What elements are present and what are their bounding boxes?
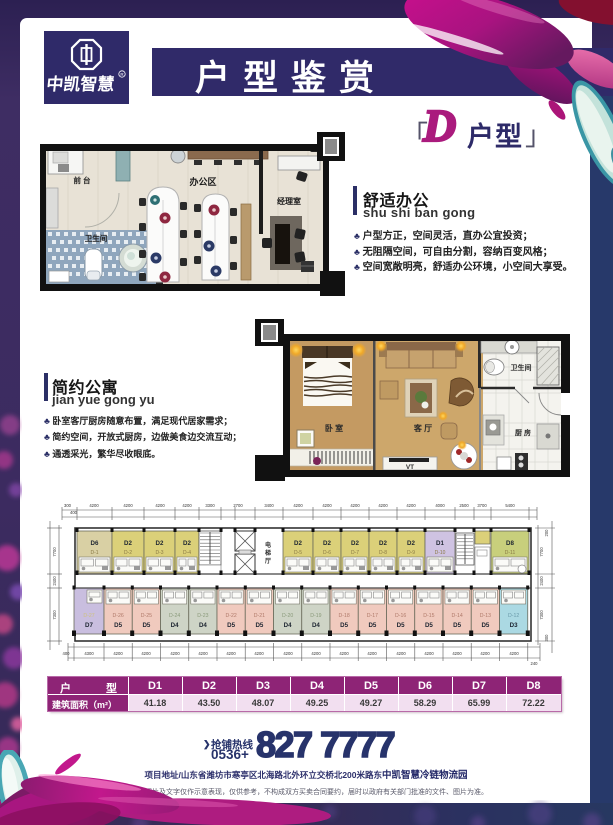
- svg-text:4200: 4200: [406, 503, 416, 508]
- svg-text:D-14: D-14: [451, 613, 462, 619]
- svg-text:200: 200: [544, 529, 549, 537]
- svg-text:2500: 2500: [459, 503, 469, 508]
- svg-text:D5: D5: [481, 622, 489, 629]
- svg-text:4200: 4200: [311, 651, 321, 656]
- svg-text:D5: D5: [114, 622, 122, 629]
- svg-text:D-4: D-4: [183, 550, 191, 556]
- svg-text:4200: 4200: [424, 651, 434, 656]
- svg-text:7300: 7300: [52, 610, 57, 620]
- svg-text:D-7: D-7: [351, 550, 359, 556]
- svg-text:D4: D4: [199, 622, 207, 629]
- svg-text:D5: D5: [368, 622, 376, 629]
- svg-text:4200: 4200: [198, 651, 208, 656]
- svg-text:电: 电: [265, 541, 271, 549]
- svg-text:厨 房: 厨 房: [515, 428, 531, 437]
- svg-text:4200: 4200: [182, 503, 192, 508]
- svg-text:办公区: 办公区: [189, 176, 216, 187]
- svg-text:4200: 4200: [293, 503, 303, 508]
- svg-text:D-16: D-16: [395, 613, 406, 619]
- svg-text:D-20: D-20: [282, 613, 293, 619]
- svg-text:D2: D2: [323, 540, 331, 547]
- svg-text:D2: D2: [294, 540, 302, 547]
- svg-text:D-26: D-26: [112, 613, 123, 619]
- svg-text:D2: D2: [407, 540, 415, 547]
- svg-text:D5: D5: [227, 622, 235, 629]
- svg-text:D2: D2: [183, 540, 191, 547]
- svg-text:厅: 厅: [265, 557, 271, 565]
- svg-text:D-22: D-22: [225, 613, 236, 619]
- svg-text:D4: D4: [312, 622, 320, 629]
- svg-text:梯: 梯: [265, 549, 271, 557]
- svg-text:4200: 4200: [170, 651, 180, 656]
- svg-text:D3: D3: [510, 622, 518, 629]
- svg-text:前 台: 前 台: [73, 175, 91, 185]
- svg-text:卫生间: 卫生间: [511, 363, 532, 372]
- svg-text:4200: 4200: [339, 651, 349, 656]
- svg-text:D4: D4: [284, 622, 292, 629]
- svg-text:D-6: D-6: [323, 550, 331, 556]
- svg-text:D5: D5: [142, 622, 150, 629]
- svg-text:7700: 7700: [52, 547, 57, 557]
- svg-text:卧 室: 卧 室: [325, 423, 343, 433]
- svg-text:240: 240: [531, 661, 539, 666]
- svg-text:D-8: D-8: [379, 550, 387, 556]
- svg-text:4200: 4200: [226, 651, 236, 656]
- svg-text:3700: 3700: [477, 503, 487, 508]
- svg-text:卫生间: 卫生间: [85, 233, 108, 243]
- svg-text:D5: D5: [453, 622, 461, 629]
- svg-text:D-21: D-21: [254, 613, 265, 619]
- svg-text:中凯智慧: 中凯智慧: [45, 74, 115, 94]
- svg-text:400: 400: [70, 510, 78, 515]
- svg-text:D-3: D-3: [155, 550, 163, 556]
- svg-text:4200: 4200: [367, 651, 377, 656]
- svg-text:4200: 4200: [452, 651, 462, 656]
- svg-text:5400: 5400: [505, 503, 515, 508]
- svg-text:经理室: 经理室: [277, 196, 301, 206]
- svg-text:4200: 4200: [509, 651, 519, 656]
- svg-text:4200: 4200: [322, 503, 332, 508]
- svg-text:D2: D2: [379, 540, 387, 547]
- svg-text:D8: D8: [506, 540, 514, 547]
- svg-text:D2: D2: [351, 540, 359, 547]
- svg-text:300: 300: [544, 634, 549, 642]
- svg-text:4200: 4200: [155, 503, 165, 508]
- svg-text:4200: 4200: [396, 651, 406, 656]
- svg-text:VT: VT: [406, 464, 414, 471]
- svg-text:D-11: D-11: [505, 550, 516, 556]
- svg-text:4000: 4000: [435, 503, 445, 508]
- svg-text:D4: D4: [171, 622, 179, 629]
- svg-text:4200: 4200: [378, 503, 388, 508]
- svg-text:4200: 4200: [113, 651, 123, 656]
- svg-text:7300: 7300: [539, 610, 544, 620]
- svg-text:D-19: D-19: [310, 613, 321, 619]
- svg-text:3400: 3400: [264, 503, 274, 508]
- svg-text:2700: 2700: [233, 503, 243, 508]
- svg-text:D2: D2: [124, 540, 132, 547]
- svg-text:D5: D5: [397, 622, 405, 629]
- svg-text:D7: D7: [85, 622, 93, 629]
- svg-text:D-2: D-2: [124, 550, 132, 556]
- svg-text:D-24: D-24: [169, 613, 180, 619]
- svg-text:D6: D6: [91, 540, 99, 547]
- svg-text:4200: 4200: [141, 651, 151, 656]
- svg-text:D-12: D-12: [508, 613, 519, 619]
- svg-text:D-1: D-1: [90, 550, 98, 556]
- svg-text:D-10: D-10: [435, 550, 446, 556]
- svg-text:D5: D5: [255, 622, 263, 629]
- svg-text:300: 300: [64, 503, 72, 508]
- svg-text:D-27: D-27: [83, 613, 94, 619]
- svg-text:7700: 7700: [539, 547, 544, 557]
- svg-text:4300: 4300: [84, 651, 94, 656]
- svg-text:D-15: D-15: [423, 613, 434, 619]
- svg-text:D-9: D-9: [407, 550, 415, 556]
- svg-text:D5: D5: [340, 622, 348, 629]
- svg-text:4200: 4200: [254, 651, 264, 656]
- svg-text:D-18: D-18: [338, 613, 349, 619]
- svg-text:4200: 4200: [480, 651, 490, 656]
- svg-text:D-25: D-25: [141, 613, 152, 619]
- svg-text:D1: D1: [436, 540, 444, 547]
- svg-text:4200: 4200: [350, 503, 360, 508]
- svg-text:400: 400: [63, 651, 71, 656]
- svg-text:D5: D5: [425, 622, 433, 629]
- svg-text:客 厅: 客 厅: [413, 423, 432, 433]
- svg-text:D-13: D-13: [480, 613, 491, 619]
- svg-text:D2: D2: [156, 540, 164, 547]
- svg-text:3300: 3300: [205, 503, 215, 508]
- svg-text:2400: 2400: [52, 576, 57, 586]
- svg-text:4200: 4200: [89, 503, 99, 508]
- svg-text:4200: 4200: [123, 503, 133, 508]
- svg-text:4200: 4200: [283, 651, 293, 656]
- svg-text:D-5: D-5: [294, 550, 302, 556]
- svg-text:D-17: D-17: [367, 613, 378, 619]
- svg-text:2400: 2400: [539, 576, 544, 586]
- svg-text:D-23: D-23: [197, 613, 208, 619]
